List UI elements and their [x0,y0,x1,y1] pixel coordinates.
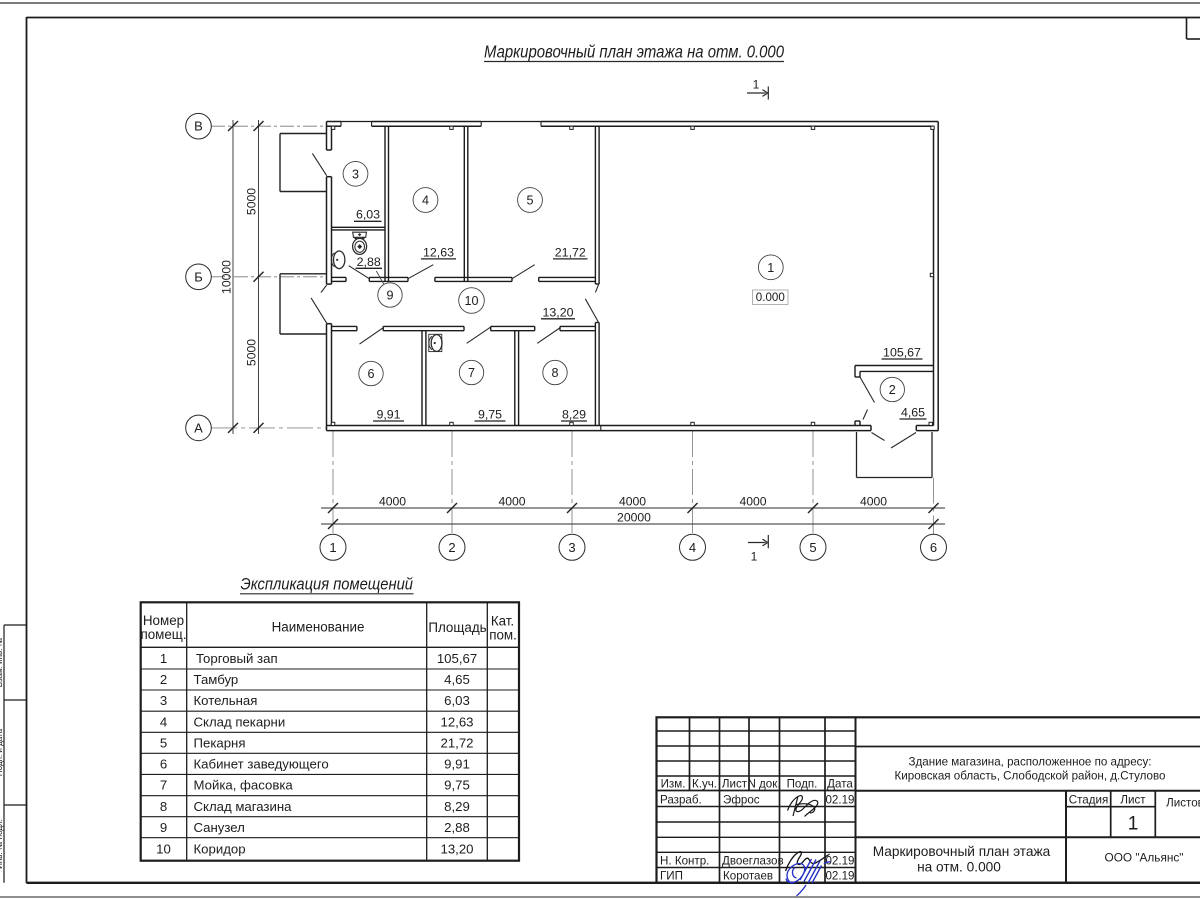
svg-text:Двоеглазов: Двоеглазов [722,854,784,867]
svg-text:Листов: Листов [1166,797,1200,810]
svg-text:8: 8 [551,366,558,380]
svg-text:6,03: 6,03 [356,208,380,222]
svg-text:5000: 5000 [245,339,259,366]
svg-text:на отм. 0.000: на отм. 0.000 [917,859,1001,874]
svg-text:Подп. и дата: Подп. и дата [0,728,4,776]
svg-text:5: 5 [526,194,533,208]
svg-text:помещ.: помещ. [140,627,186,642]
svg-text:Изм.: Изм. [661,777,686,790]
svg-text:Торговый зап: Торговый зап [196,651,278,666]
svg-text:105,67: 105,67 [883,346,921,360]
svg-text:12,63: 12,63 [423,246,454,260]
svg-text:Кат.: Кат. [491,614,514,629]
svg-text:1: 1 [751,550,758,564]
svg-text:Дата: Дата [827,777,853,790]
svg-text:Здание магазина, расположенное: Здание магазина, расположенное по адресу… [909,756,1152,769]
svg-text:3: 3 [568,540,575,555]
svg-text:4,65: 4,65 [901,406,925,420]
svg-text:ООО "Альянс": ООО "Альянс" [1105,851,1184,865]
svg-text:А: А [194,420,203,435]
svg-text:Коридор: Коридор [194,841,246,856]
svg-text:Пекарня: Пекарня [194,735,246,750]
svg-text:9,91: 9,91 [376,408,400,422]
svg-text:5000: 5000 [245,188,259,215]
svg-text:20000: 20000 [617,511,651,525]
svg-text:13,20: 13,20 [440,841,473,856]
svg-text:12,63: 12,63 [440,714,473,729]
svg-text:Кабинет заведующего: Кабинет заведующего [194,756,329,771]
svg-text:2: 2 [889,383,896,397]
svg-text:6: 6 [367,367,374,381]
svg-text:9,75: 9,75 [444,778,470,793]
svg-text:3: 3 [160,693,167,708]
svg-text:Тамбур: Тамбур [194,672,239,687]
svg-text:1: 1 [329,540,336,555]
svg-text:5: 5 [160,735,167,750]
svg-text:Лист: Лист [722,777,748,790]
svg-text:1: 1 [767,261,774,275]
svg-text:4: 4 [689,540,696,555]
svg-text:Подп.: Подп. [787,777,818,790]
svg-text:ГИП: ГИП [660,869,683,882]
svg-text:02.19: 02.19 [825,854,854,867]
svg-text:3: 3 [352,167,359,181]
svg-text:8: 8 [160,799,167,814]
svg-text:5: 5 [809,540,816,555]
svg-text:Склад пекарни: Склад пекарни [194,714,286,729]
svg-text:N док.: N док. [747,777,780,790]
svg-text:10: 10 [464,294,478,308]
svg-text:Склад магазина: Склад магазина [194,799,293,814]
svg-text:Разраб.: Разраб. [660,793,702,806]
svg-text:Эфрос: Эфрос [723,793,760,806]
svg-text:Наименование: Наименование [272,620,365,635]
svg-text:02.19: 02.19 [825,793,854,806]
svg-text:7: 7 [468,366,475,380]
svg-text:1: 1 [753,78,760,92]
svg-text:1: 1 [160,651,167,666]
svg-text:21,72: 21,72 [440,735,473,750]
svg-text:10000: 10000 [220,260,234,294]
svg-text:Мойка, фасовка: Мойка, фасовка [194,778,294,793]
svg-text:Маркировочный план этажа: Маркировочный план этажа [873,844,1051,859]
svg-text:Номер: Номер [143,613,184,628]
svg-text:8,29: 8,29 [444,799,470,814]
svg-text:9: 9 [160,820,167,835]
svg-text:пом.: пом. [489,628,517,643]
svg-text:Коротаев: Коротаев [723,869,773,882]
svg-text:Взам. инв. №: Взам. инв. № [0,637,4,687]
svg-text:9,91: 9,91 [444,756,470,771]
svg-text:4000: 4000 [619,495,646,509]
svg-text:4000: 4000 [739,495,766,509]
svg-text:Экспликация помещений: Экспликация помещений [241,576,414,594]
svg-text:2,88: 2,88 [357,255,381,269]
svg-text:4000: 4000 [379,495,406,509]
svg-text:Котельная: Котельная [194,693,258,708]
svg-text:Б: Б [194,269,203,284]
svg-text:21,72: 21,72 [555,246,586,260]
svg-text:1: 1 [1128,814,1139,835]
svg-text:4: 4 [422,194,429,208]
svg-text:Площадь: Площадь [428,620,486,635]
svg-text:Санузел: Санузел [194,820,245,835]
svg-text:Стадия: Стадия [1069,793,1109,806]
svg-text:Маркировочный план этажа на от: Маркировочный план этажа на отм. 0.000 [484,42,784,62]
svg-text:Н. Контр.: Н. Контр. [660,854,709,867]
svg-text:В: В [194,119,203,134]
svg-text:Инв. № подл.: Инв. № подл. [0,819,4,869]
svg-text:4: 4 [160,714,167,729]
svg-text:2: 2 [160,672,167,687]
svg-text:9,75: 9,75 [478,408,502,422]
svg-text:10: 10 [156,841,171,856]
svg-text:02.19: 02.19 [825,869,854,882]
svg-text:9: 9 [386,289,393,303]
svg-text:6: 6 [930,540,937,555]
svg-text:К.уч.: К.уч. [692,777,717,790]
svg-text:2: 2 [448,540,455,555]
svg-text:4,65: 4,65 [444,672,470,687]
svg-text:Кировская область, Слободской: Кировская область, Слободской район, д.С… [895,770,1166,783]
svg-text:2,88: 2,88 [444,820,470,835]
svg-text:0.000: 0.000 [756,291,785,304]
svg-text:7: 7 [160,778,167,793]
svg-text:105,67: 105,67 [437,651,477,666]
svg-text:6: 6 [160,756,167,771]
svg-text:Лист: Лист [1120,793,1146,806]
svg-text:4000: 4000 [860,495,887,509]
svg-text:8,29: 8,29 [562,408,586,422]
svg-text:4000: 4000 [498,495,525,509]
svg-text:13,20: 13,20 [542,306,573,320]
svg-text:6,03: 6,03 [444,693,470,708]
